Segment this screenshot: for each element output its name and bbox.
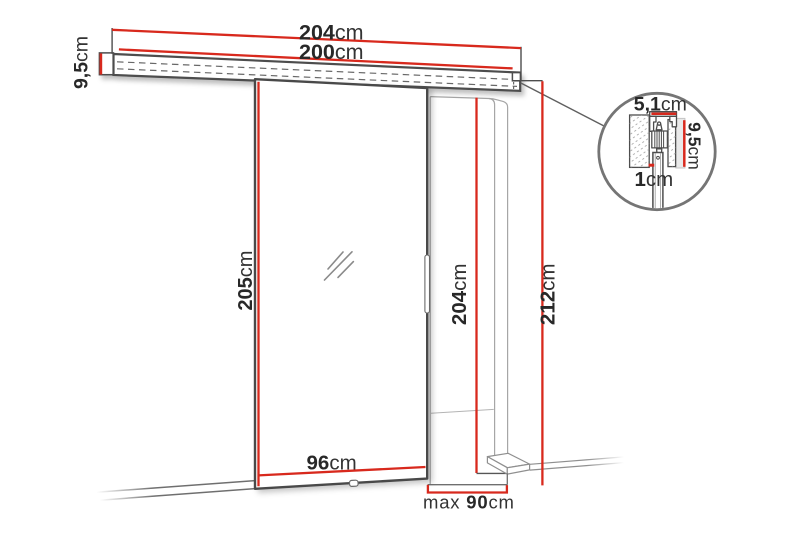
svg-text:1cm: 1cm — [635, 168, 674, 191]
svg-text:204cm: 204cm — [448, 264, 471, 326]
svg-text:200cm: 200cm — [299, 40, 364, 64]
svg-text:205cm: 205cm — [235, 251, 257, 311]
svg-text:5,1cm: 5,1cm — [634, 93, 687, 115]
svg-text:max 90cm: max 90cm — [423, 491, 515, 512]
svg-text:96cm: 96cm — [307, 451, 357, 474]
svg-text:212cm: 212cm — [537, 264, 560, 326]
svg-text:9,5cm: 9,5cm — [685, 122, 705, 170]
svg-text:9,5cm: 9,5cm — [71, 36, 93, 89]
